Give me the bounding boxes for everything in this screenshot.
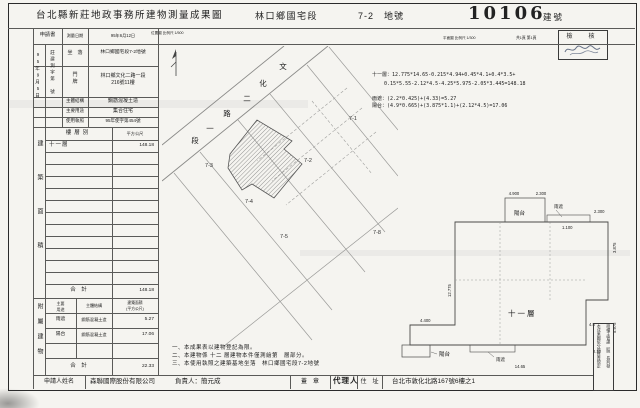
dimension-labels: 4.900 2.300 1.100 2.300 3.875 12.775 4.4… — [420, 191, 617, 369]
road-char: 一 — [206, 124, 214, 133]
table-line — [45, 236, 158, 237]
building-number-label: 建號 — [543, 13, 564, 22]
agent-label: 代理人 — [333, 377, 359, 385]
table-line — [45, 212, 158, 213]
delegation-note-box: 本成果圖依分層負責規定 授權主管課（股）長判發 — [593, 323, 614, 391]
structure-value: 鋼筋混凝土造 — [88, 99, 158, 104]
balcony-leader-line — [431, 352, 437, 354]
table-line — [45, 284, 158, 285]
floor-label: 十一層 — [508, 308, 537, 318]
address-value: 台北市敦化北路167號6樓之1 — [392, 379, 475, 386]
land-section-title: 林口鄉國宅段 — [255, 12, 318, 21]
principal-name: 負責人：簡元成 — [175, 379, 221, 386]
scan-smudge — [0, 388, 40, 408]
site-value: 林口鄉國宅段7-2地號 — [88, 51, 158, 56]
receipt-doc-number: 莊建測字第 號 — [50, 50, 55, 126]
table-line — [45, 140, 158, 141]
calc-line: 雨遮：(2.2*0.425)+(4.33)=5.27 — [372, 97, 456, 102]
balcony-top-label: 陽台 — [514, 209, 526, 217]
annex-area-header: 建築面積 (平方公尺) — [112, 301, 158, 312]
table-line — [33, 127, 158, 128]
annex-side-label: 附屬建物 — [36, 303, 42, 371]
lot-label: 7-3 — [205, 163, 213, 169]
page-count: 共1頁 第1頁 — [516, 37, 536, 41]
lot-label: 7-2 — [304, 158, 312, 164]
receipt-date: 95年9月5日 — [35, 52, 40, 124]
table-line — [45, 358, 158, 359]
table-line — [45, 152, 158, 153]
canopy-leader-line — [556, 210, 562, 217]
annex-row-area: 17.06 — [112, 333, 154, 338]
table-line — [45, 224, 158, 225]
delegation-note-column: 本成果圖依分層負責規定 — [596, 324, 602, 390]
building-number: 10106 — [468, 5, 546, 23]
canopy-top-label: 雨遮 — [554, 203, 563, 210]
table-line — [33, 298, 158, 299]
lot-label: 7-1 — [349, 116, 357, 122]
calc-line: 十一層：12.775*14.65-0.215*4.94+0.45*4.1+0.4… — [372, 73, 515, 78]
table-line — [33, 44, 635, 45]
north-arrow — [171, 49, 176, 76]
annex-row-area: 5.27 — [112, 318, 154, 323]
table-line — [33, 29, 34, 389]
table-line — [45, 248, 158, 249]
dim-label: 1.100 — [562, 225, 573, 230]
annex-total-label: 合 計 — [45, 364, 112, 370]
lot-label: 7-8 — [373, 230, 381, 236]
subject-building-footprint — [228, 120, 302, 198]
lot-label: 7-4 — [245, 199, 253, 205]
floor-plan-drawing: 十一層 陽台 陽台 雨遮 雨遮 4.900 2.300 1.100 2.300 … — [390, 185, 626, 371]
lot-number-title: 7-2 地號 — [358, 12, 404, 21]
table-line — [45, 343, 158, 344]
applicant-name-value: 森聯國際股份有限公司 — [90, 379, 155, 386]
table-line — [45, 328, 158, 329]
table-line — [45, 260, 158, 261]
footnote-line: 三、本使用執照之建築基地坐落 林口鄉國宅段7-2地號 — [172, 362, 319, 368]
site-label: 坐 落 — [62, 51, 88, 56]
main-use-value: 集合住宅 — [88, 109, 158, 114]
balcony-bottom-label: 陽台 — [439, 350, 451, 358]
address-label: 住 址 — [357, 379, 382, 385]
calc-line: 陽台：(4.9*0.665)+(3.875*1.1)+(2.12*4.5)=17… — [372, 104, 507, 109]
survey-date-value: 95年6月12日 — [88, 34, 158, 38]
dim-label: 4.900 — [509, 191, 520, 196]
annex-total-value: 22.33 — [112, 365, 154, 370]
location-map-scale: 位置圖 比例尺 1/500 — [151, 32, 184, 36]
lot-number-labels: 7-1 7-2 7-3 7-4 7-5 7-8 — [205, 116, 381, 240]
table-line — [45, 188, 158, 189]
table-line — [45, 44, 46, 375]
sqm-column-header: 平方公尺 — [112, 132, 158, 136]
calc-line: 0.15*5.55-2.12*4.5-4.25*5.975-2.05*3.445… — [384, 82, 525, 87]
footnote-line: 一、本成果表以建物登記為限。 — [172, 346, 256, 352]
scanned-survey-document: 台北縣新莊地政事務所建物測量成果圖 林口鄉國宅段 7-2 地號 10106 建號… — [0, 0, 640, 408]
building-area-side-label: 建築面積 — [36, 140, 42, 295]
dim-label: 2.300 — [536, 191, 547, 196]
footnote-line: 二、本建物係 十二 層建物本件僅測繪第 層部分。 — [172, 354, 308, 360]
floor-row-area: 148.18 — [112, 144, 154, 149]
road-char: 段 — [191, 135, 199, 145]
check-stamp-label: 檢 核 — [559, 34, 607, 40]
table-line — [112, 127, 113, 375]
main-use-label: 主要用途 — [62, 109, 88, 114]
table-line — [45, 272, 158, 273]
check-stamp-box: 檢 核 — [558, 30, 608, 60]
annex-row-use: 雨遮 — [45, 318, 76, 323]
dim-label: 14.65 — [515, 364, 526, 369]
road-char: 文 — [279, 61, 287, 71]
door-plate-value: 林口鄉文化二路一段 216號11樓 — [88, 73, 158, 88]
table-line — [158, 29, 159, 375]
dim-label: 12.775 — [447, 284, 452, 297]
bottom-balcony-outline — [402, 345, 430, 357]
annex-row-use: 陽台 — [45, 333, 76, 338]
lot-boundary-lines — [174, 47, 398, 346]
door-plate-label: 門 牌 — [62, 72, 88, 87]
annex-row-structure: 鋼筋混凝土造 — [76, 333, 112, 337]
bottom-canopy-outline — [470, 345, 515, 352]
table-line — [45, 200, 158, 201]
dim-label: 4.400 — [420, 318, 431, 323]
survey-date-label: 測量日期 — [62, 34, 88, 38]
top-balcony-outline — [505, 198, 545, 222]
annex-structure-header: 主體結構 — [76, 304, 112, 308]
footer-top-line — [33, 375, 593, 376]
title-divider — [8, 28, 635, 29]
signature-scribble — [560, 43, 606, 57]
road-char: 化 — [259, 78, 267, 88]
floor-outline — [410, 222, 608, 345]
applicant-name-label: 申請人姓名 — [33, 379, 85, 385]
delegation-note-column: 授權主管課（股）長判發 — [605, 324, 611, 390]
canopy-bottom-label: 雨遮 — [496, 356, 505, 363]
license-label: 使用執照 — [62, 119, 88, 124]
road-char: 路 — [223, 108, 231, 118]
floor-row-label: 十一層 — [49, 143, 69, 149]
floor-plan-scale: 平面圖 比例尺 1/300 — [443, 37, 476, 41]
table-line — [45, 313, 158, 314]
table-line — [330, 375, 331, 389]
area-total-label: 合 計 — [45, 288, 112, 294]
road-char: 二 — [243, 94, 251, 103]
annex-use-header: 主要 用途 — [45, 301, 76, 313]
table-line — [45, 164, 158, 165]
canopy-leader-line — [488, 352, 494, 357]
table-line — [45, 176, 158, 177]
site-location-plan: 文 化 二 路 一 段 7-1 7-2 7-3 7-4 7-5 7-8 — [162, 46, 398, 346]
seal-label: 蓋 章 — [290, 379, 330, 385]
application-label: 申請書 — [33, 33, 62, 38]
area-total-value: 148.18 — [112, 289, 154, 294]
table-line — [382, 375, 383, 389]
lot-label: 7-5 — [280, 234, 288, 240]
dim-label: 3.875 — [612, 242, 617, 253]
floor-column-header: 樓層別 — [45, 131, 112, 137]
structure-label: 主體結構 — [62, 99, 88, 104]
document-title: 台北縣新莊地政事務所建物測量成果圖 — [36, 11, 223, 21]
table-line — [85, 375, 86, 389]
license-value: 95年使字第454號 — [88, 119, 158, 124]
annex-row-structure: 鋼筋混凝土造 — [76, 318, 112, 322]
top-canopy-outline — [547, 215, 590, 222]
dim-label: 2.300 — [594, 209, 605, 214]
interior-partition-lines — [455, 222, 586, 345]
